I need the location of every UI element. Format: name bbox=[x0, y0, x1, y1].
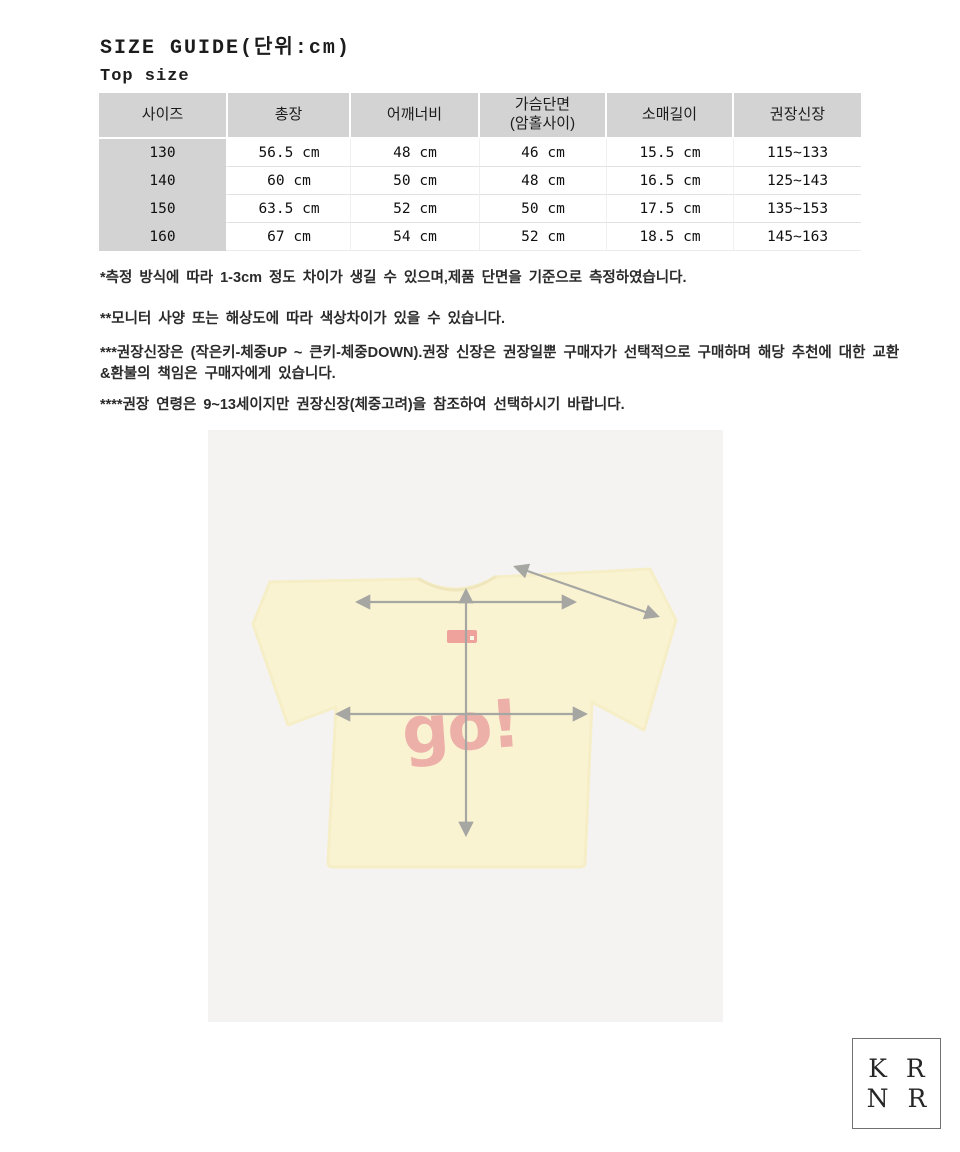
table-row: 130 56.5 cm 48 cm 46 cm 15.5 cm 115~133 bbox=[99, 139, 861, 167]
table-cell: 145~163 bbox=[734, 223, 861, 251]
table-cell: 52 cm bbox=[351, 195, 480, 223]
col-header-label: 권장신장 bbox=[770, 106, 825, 123]
col-header-label: 가슴단면 bbox=[515, 96, 570, 113]
table-cell: 60 cm bbox=[228, 167, 351, 195]
size-cell: 160 bbox=[99, 223, 228, 251]
table-cell: 125~143 bbox=[734, 167, 861, 195]
table-row: 140 60 cm 50 cm 48 cm 16.5 cm 125~143 bbox=[99, 167, 861, 195]
chest-label-dot bbox=[470, 636, 474, 640]
note-age-recommendation: ****권장 연령은 9~13세이지만 권장신장(체중고려)을 참조하여 선택하… bbox=[100, 395, 902, 416]
logo-letter: R bbox=[906, 1056, 925, 1081]
col-header-label: 총장 bbox=[275, 106, 303, 123]
table-cell: 63.5 cm bbox=[228, 195, 351, 223]
table-cell: 50 cm bbox=[351, 167, 480, 195]
tshirt-measure-illustration: go! bbox=[208, 430, 723, 1022]
table-cell: 18.5 cm bbox=[607, 223, 734, 251]
size-cell: 130 bbox=[99, 139, 228, 167]
table-cell: 46 cm bbox=[480, 139, 607, 167]
size-table: 사이즈 총장 어깨너비 가슴단면 (암홀사이) 소매길이 권장신장 130 56… bbox=[99, 93, 861, 251]
col-header-sleeve: 소매길이 bbox=[607, 93, 734, 139]
go-graphic-text: go! bbox=[399, 685, 521, 770]
product-image: go! bbox=[208, 430, 723, 1022]
table-cell: 115~133 bbox=[734, 139, 861, 167]
table-row: 160 67 cm 54 cm 52 cm 18.5 cm 145~163 bbox=[99, 223, 861, 251]
col-header-size: 사이즈 bbox=[99, 93, 228, 139]
note-monitor: **모니터 사양 또는 해상도에 따라 색상차이가 있을 수 있습니다. bbox=[100, 309, 902, 330]
logo-letter: R bbox=[908, 1086, 927, 1111]
table-cell: 17.5 cm bbox=[607, 195, 734, 223]
note-height-recommendation: ***권장신장은 (작은키-체중UP ~ 큰키-체중DOWN).권장 신장은 권… bbox=[100, 343, 902, 385]
table-cell: 48 cm bbox=[480, 167, 607, 195]
size-cell: 150 bbox=[99, 195, 228, 223]
table-row: 150 63.5 cm 52 cm 50 cm 17.5 cm 135~153 bbox=[99, 195, 861, 223]
section-subtitle: Top size bbox=[100, 67, 190, 86]
table-cell: 15.5 cm bbox=[607, 139, 734, 167]
logo-letter: K bbox=[868, 1056, 887, 1081]
notes-section: *측정 방식에 따라 1-3cm 정도 차이가 생길 수 있으며,제품 단면을 … bbox=[100, 268, 902, 416]
col-header-chest: 가슴단면 (암홀사이) bbox=[480, 93, 607, 139]
table-cell: 56.5 cm bbox=[228, 139, 351, 167]
table-cell: 52 cm bbox=[480, 223, 607, 251]
table-cell: 50 cm bbox=[480, 195, 607, 223]
table-cell: 48 cm bbox=[351, 139, 480, 167]
col-header-shoulder: 어깨너비 bbox=[351, 93, 480, 139]
table-cell: 135~153 bbox=[734, 195, 861, 223]
table-cell: 54 cm bbox=[351, 223, 480, 251]
logo-row: N R bbox=[867, 1086, 927, 1111]
note-measurement: *측정 방식에 따라 1-3cm 정도 차이가 생길 수 있으며,제품 단면을 … bbox=[100, 268, 902, 289]
table-cell: 16.5 cm bbox=[607, 167, 734, 195]
logo-letter: N bbox=[867, 1086, 889, 1111]
page-title: SIZE GUIDE(단위:cm) bbox=[100, 30, 351, 60]
size-cell: 140 bbox=[99, 167, 228, 195]
col-header-label: 소매길이 bbox=[642, 106, 697, 123]
size-guide-page: SIZE GUIDE(단위:cm) Top size 사이즈 총장 어깨너비 가… bbox=[0, 0, 960, 1152]
table-header-row: 사이즈 총장 어깨너비 가슴단면 (암홀사이) 소매길이 권장신장 bbox=[99, 93, 861, 139]
col-header-total-length: 총장 bbox=[228, 93, 351, 139]
brand-logo-krnr: K R N R bbox=[852, 1038, 941, 1129]
logo-row: K R bbox=[868, 1056, 925, 1081]
col-header-label: 사이즈 bbox=[142, 106, 183, 123]
table-cell: 67 cm bbox=[228, 223, 351, 251]
col-header-label: 어깨너비 bbox=[387, 106, 442, 123]
col-header-sublabel: (암홀사이) bbox=[480, 115, 605, 134]
col-header-height: 권장신장 bbox=[734, 93, 861, 139]
